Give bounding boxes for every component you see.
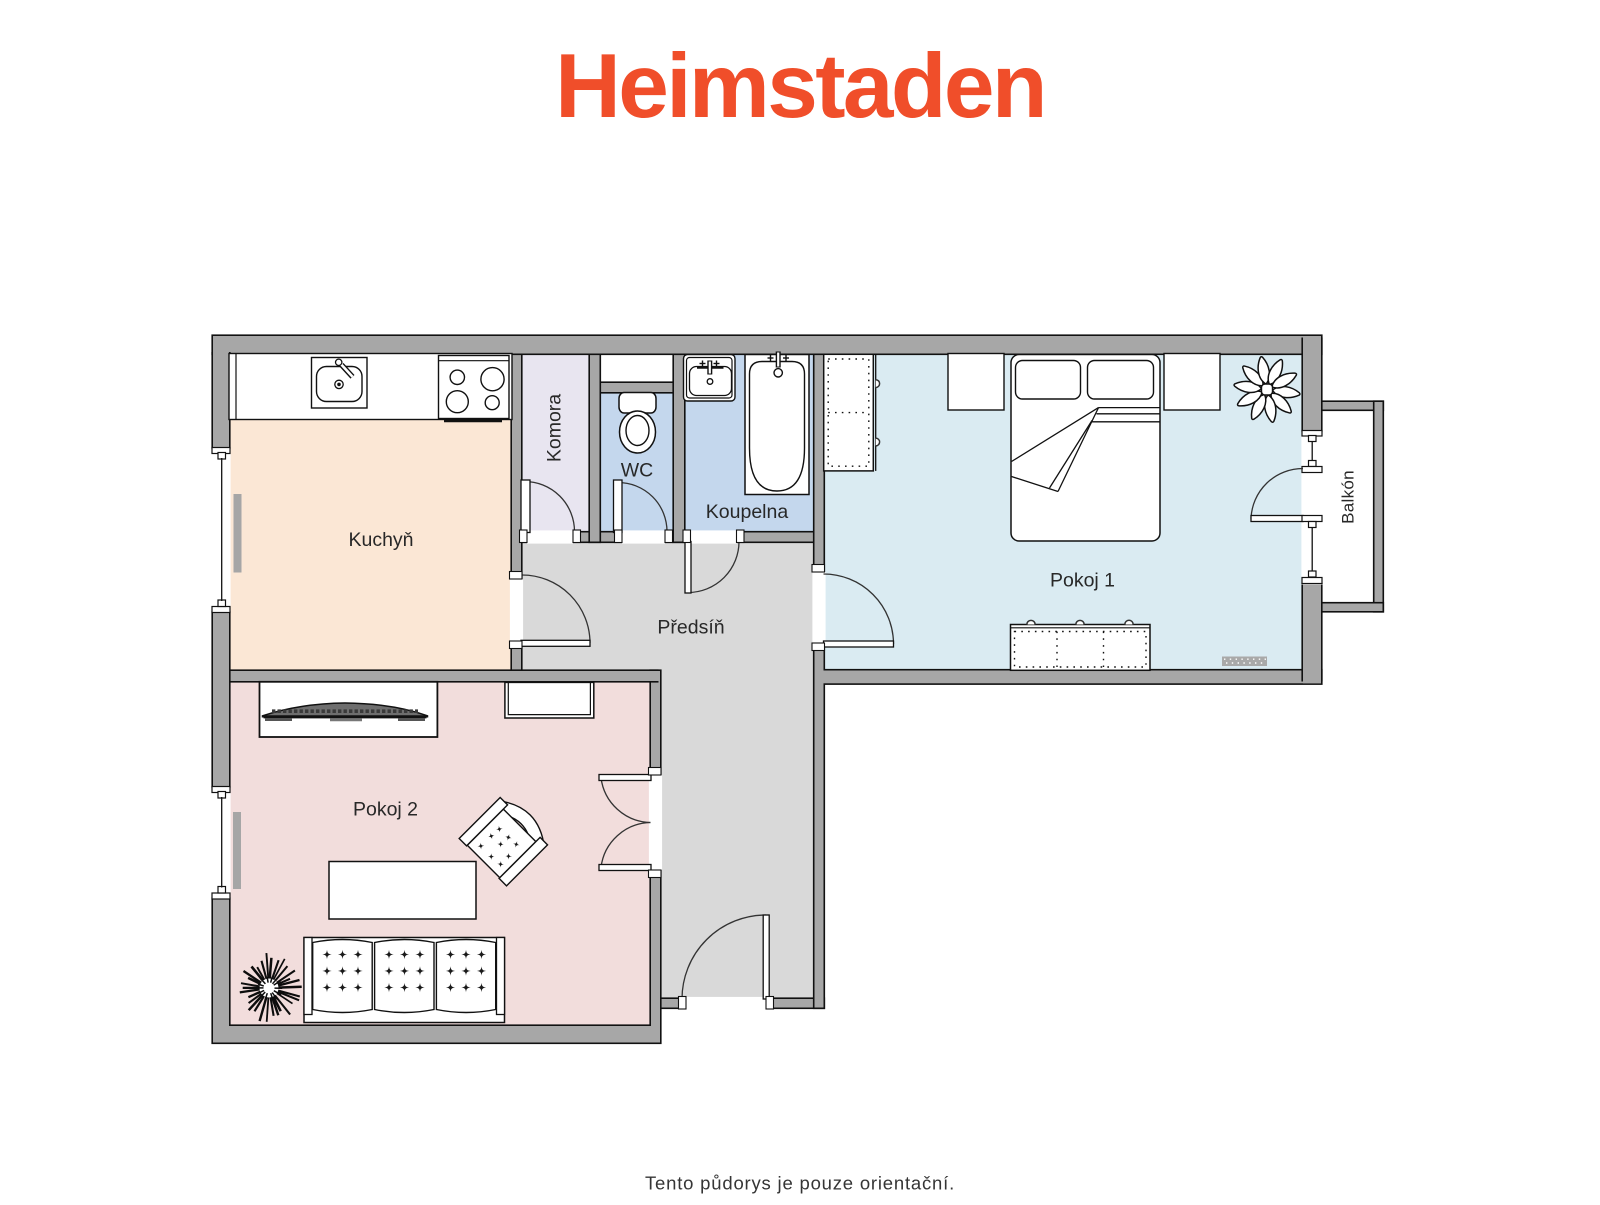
svg-text:WC: WC	[621, 460, 654, 482]
svg-text:Předsíň: Předsíň	[657, 617, 724, 639]
svg-text:Komora: Komora	[544, 394, 566, 462]
svg-text:Pokoj 2: Pokoj 2	[353, 799, 418, 821]
svg-text:Balkón: Balkón	[1339, 470, 1358, 524]
svg-text:Pokoj 1: Pokoj 1	[1050, 570, 1115, 592]
svg-text:Kuchyň: Kuchyň	[348, 529, 413, 551]
svg-text:Koupelna: Koupelna	[706, 501, 789, 523]
svg-text:Tento půdorys je pouze orienta: Tento půdorys je pouze orientační.	[645, 1173, 955, 1194]
svg-text:Heimstaden: Heimstaden	[555, 36, 1045, 137]
